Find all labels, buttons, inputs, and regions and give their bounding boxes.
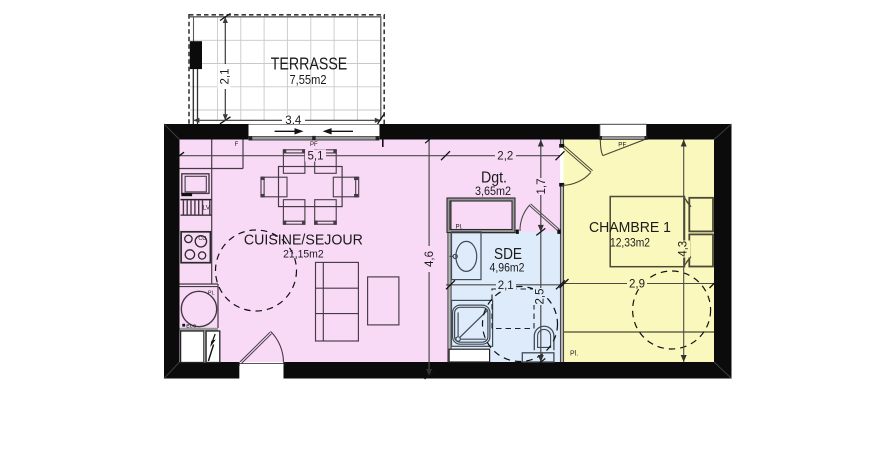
svg-text:7,55m2: 7,55m2 [290,72,327,87]
svg-text:TERRASSE: TERRASSE [271,54,348,74]
svg-text:SDE: SDE [494,246,522,263]
svg-text:3,65m2: 3,65m2 [475,186,511,198]
svg-text:PF: PF [618,142,626,149]
svg-text:PF: PF [310,142,318,148]
svg-text:1,7: 1,7 [536,179,548,195]
svg-text:Pl.: Pl. [456,223,464,230]
svg-text:CU: CU [198,236,206,242]
svg-text:2,5: 2,5 [535,289,547,305]
svg-text:2,1: 2,1 [498,280,514,292]
svg-text:Pl.: Pl. [570,351,578,358]
svg-text:Dgt.: Dgt. [481,170,507,187]
svg-text:CHAMBRE 1: CHAMBRE 1 [589,219,671,236]
svg-text:2,9: 2,9 [629,279,645,291]
svg-text:4,6: 4,6 [424,251,436,267]
svg-text:F: F [235,142,239,148]
svg-text:5,1: 5,1 [308,151,324,163]
svg-text:2,1: 2,1 [220,69,232,85]
svg-text:LV: LV [203,204,211,211]
svg-text:4,3: 4,3 [678,241,690,257]
svg-text:12,33m2: 12,33m2 [610,237,650,249]
svg-text:4,96m2: 4,96m2 [490,263,525,275]
svg-text:2,2: 2,2 [497,151,513,163]
svg-text:PL: PL [208,291,215,297]
svg-text:21,15m2: 21,15m2 [283,248,324,260]
svg-text:CUISINE/SEJOUR: CUISINE/SEJOUR [244,232,363,248]
